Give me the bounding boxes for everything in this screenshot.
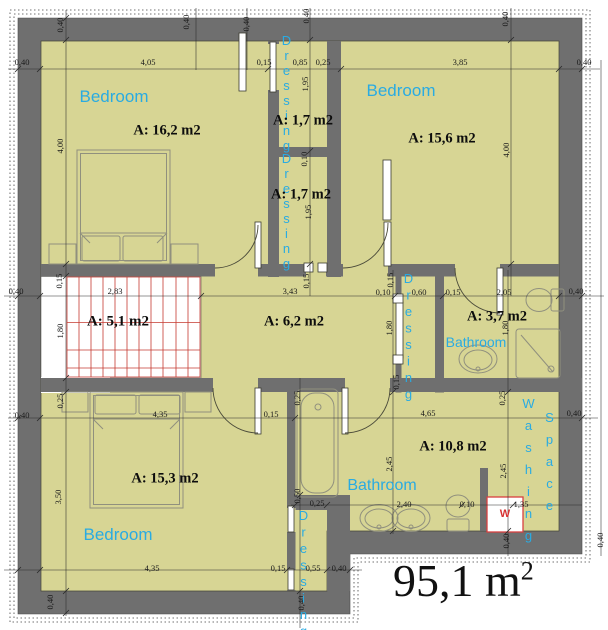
- dim-label: 0,15: [271, 563, 286, 573]
- room-label-dressing-bottom: Dressing: [296, 508, 310, 630]
- dim-label: 4,05: [141, 57, 156, 67]
- area-bedroom-bottom: A: 15,3 m2: [131, 471, 198, 488]
- dim-label: 2,40: [397, 499, 412, 509]
- dim-label: 0,25: [316, 57, 331, 67]
- area-dressing-lower: A: 1,7 m2: [271, 187, 331, 204]
- floor-plan: Bedroom Bedroom Bedroom Bathroom Bathroo…: [0, 0, 608, 630]
- dim-label: 4,00: [55, 139, 65, 154]
- total-area: 95,1 m2: [393, 554, 534, 607]
- dim-label: 0,25: [292, 391, 302, 406]
- room-label-bedroom-top-right: Bedroom: [367, 81, 436, 101]
- dim-label: 1,80: [384, 321, 394, 336]
- room-label-washing: Washing: [521, 396, 535, 550]
- dim-label: 3,43: [283, 286, 298, 296]
- dim-label: 0,10: [376, 287, 391, 297]
- room-label-washing-space: Space: [542, 410, 556, 520]
- room-label-dressing-lower: Dressing: [279, 151, 293, 271]
- dim-label: 0,40: [500, 12, 510, 27]
- dim-label: 4,35: [153, 409, 168, 419]
- dim-label: 0,40: [577, 57, 592, 67]
- dim-label: 0,15: [446, 287, 461, 297]
- room-label-dressing-upper: Dressing: [279, 33, 293, 153]
- dim-label: 0,40: [55, 18, 65, 33]
- dim-label: 1,95: [303, 205, 313, 220]
- dim-label: 0,40: [241, 17, 251, 32]
- dim-label: 3,85: [453, 57, 468, 67]
- dim-label: 0,40: [569, 286, 584, 296]
- dim-label: 4,65: [421, 408, 436, 418]
- dim-label: 2,05: [497, 287, 512, 297]
- total-area-value: 95,1 m: [393, 555, 521, 606]
- area-stairwell: A: 5,1 m2: [87, 314, 149, 331]
- dim-label: 0,50: [292, 489, 302, 504]
- dim-label: 1,80: [55, 324, 65, 339]
- room-label-bedroom-top-left: Bedroom: [80, 87, 149, 107]
- dim-label: 0,40: [15, 57, 30, 67]
- washer-label: W: [500, 508, 510, 520]
- dim-label: 4,35: [145, 563, 160, 573]
- dim-label: 0,40: [9, 286, 24, 296]
- dim-label: 0,15: [391, 375, 401, 390]
- dim-label: 0,40: [15, 410, 30, 420]
- dim-label: 0,40: [45, 595, 55, 610]
- dim-label: 0,15: [301, 274, 311, 289]
- dim-label: 0,40: [301, 9, 311, 24]
- dim-label: 0,85: [293, 57, 308, 67]
- dim-label: 2,45: [384, 457, 394, 472]
- dim-label: 0,40: [567, 408, 582, 418]
- area-dressing-upper: A: 1,7 m2: [273, 113, 333, 130]
- area-bedroom-top-right: A: 15,6 m2: [408, 131, 475, 148]
- dim-label: 0,15: [385, 273, 395, 288]
- dim-label: 0,25: [55, 394, 65, 409]
- room-label-bedroom-bottom: Bedroom: [84, 525, 153, 545]
- room-label-dressing-mid: Dressing: [401, 271, 415, 403]
- dim-label: 1,95: [300, 77, 310, 92]
- dim-label: 3,50: [53, 490, 63, 505]
- dim-label: 2,83: [108, 286, 123, 296]
- dim-label: 0,40: [181, 15, 191, 30]
- area-hallway: A: 6,2 m2: [264, 314, 324, 331]
- dim-label: 0,15: [54, 274, 64, 289]
- dim-label: 0,40: [595, 533, 605, 548]
- dim-label: 0,10: [299, 152, 309, 167]
- dim-label: 0,25: [310, 498, 325, 508]
- dim-label: 0,10: [460, 499, 475, 509]
- dim-label: 2,45: [498, 464, 508, 479]
- dim-label: 0,15: [264, 409, 279, 419]
- room-label-bathroom-upper: Bathroom: [446, 334, 507, 350]
- dim-label: 0,15: [257, 57, 272, 67]
- dim-label: 0,40: [332, 563, 347, 573]
- area-bedroom-top-left: A: 16,2 m2: [133, 123, 200, 140]
- room-label-bathroom-lower: Bathroom: [347, 477, 416, 495]
- area-utility: A: 10,8 m2: [419, 439, 486, 456]
- dim-label: 4,00: [501, 143, 511, 158]
- dim-label: 0,25: [497, 391, 507, 406]
- total-area-sup: 2: [521, 557, 534, 586]
- dim-label: 0,40: [501, 534, 511, 549]
- area-bathroom-upper: A: 3,7 m2: [467, 309, 527, 326]
